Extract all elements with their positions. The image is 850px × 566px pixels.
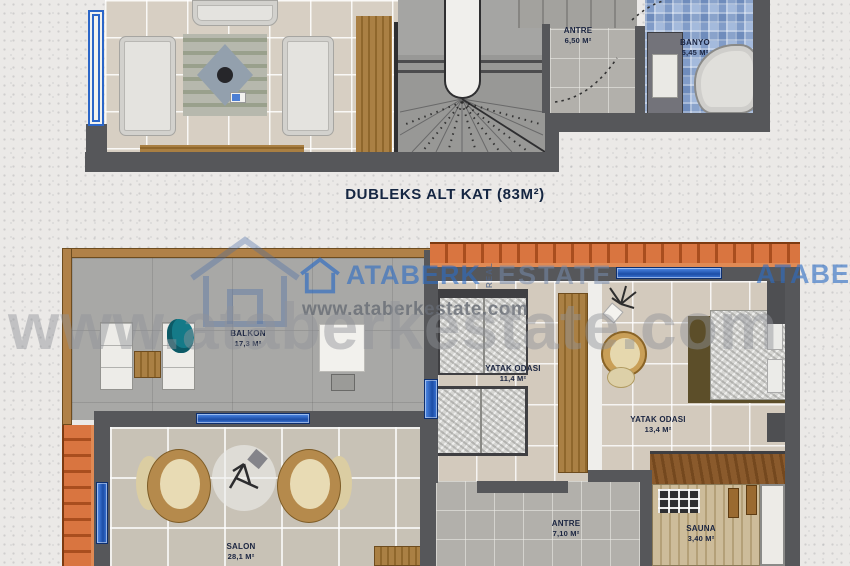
room-area: 6,50 M² xyxy=(540,36,616,46)
room-area: 5,45 M² xyxy=(655,48,735,58)
room-label-antre-upper: ANTRE 6,50 M² xyxy=(540,26,616,46)
hall-wardrobe xyxy=(650,451,785,484)
room-name: ANTRE xyxy=(540,26,616,36)
room-name: YATAK ODASI xyxy=(612,415,704,425)
balcony-plant xyxy=(167,319,194,353)
wall-bedroom1-bottom xyxy=(477,481,568,493)
armchair-2 xyxy=(277,449,341,523)
room-name: BALKON xyxy=(210,329,286,339)
room-name: BANYO xyxy=(655,38,735,48)
sauna-heater xyxy=(658,489,700,513)
room-label-salon: SALON 28,1 M² xyxy=(198,542,284,562)
wall-antre-banyo xyxy=(635,26,645,113)
room-name: ANTRE xyxy=(528,519,604,529)
room-label-yatak-odasi-1: YATAK ODASI 11,4 M² xyxy=(470,364,556,384)
armchair-1 xyxy=(147,449,211,523)
sauna-door-1 xyxy=(728,488,739,518)
room-name: YATAK ODASI xyxy=(470,364,556,374)
wall-right-outer xyxy=(785,265,800,566)
room-label-antre-lower: ANTRE 7,10 M² xyxy=(528,519,604,539)
balcony-table xyxy=(134,351,161,378)
salon-cabinet xyxy=(374,546,426,566)
room-label-banyo: BANYO 5,45 M² xyxy=(655,38,735,58)
room-name: SAUNA xyxy=(658,524,744,534)
floor-plan-image: ANTRE 6,50 M² BANYO 5,45 M² DUBLEKS ALT … xyxy=(0,0,850,566)
window-bedroom2-top xyxy=(616,267,722,279)
window-salon-left xyxy=(96,482,108,544)
wall-bottom-right xyxy=(545,113,770,132)
wardrobe-bottom-right xyxy=(767,413,786,442)
sun-lounger-1 xyxy=(100,322,133,390)
window-bedroom1-left xyxy=(424,379,438,419)
roof-tiles-left xyxy=(62,425,94,566)
window-salon-top xyxy=(196,413,310,424)
balcony-rail-top xyxy=(62,248,436,258)
balcony-gray-item xyxy=(331,374,355,391)
door-swing-arcs xyxy=(85,0,775,172)
room-area: 11,4 M² xyxy=(470,374,556,384)
wardrobe-top-right xyxy=(767,277,786,324)
balcony-rail-left xyxy=(62,248,72,425)
room-name: SALON xyxy=(198,542,284,552)
bed-single-1 xyxy=(438,289,528,375)
wall-banyo-right xyxy=(753,0,770,126)
ottoman xyxy=(607,367,635,388)
wall-connector xyxy=(545,113,559,172)
shower-area xyxy=(760,484,785,566)
wall-bottom-left xyxy=(85,152,555,172)
room-area: 3,40 M² xyxy=(658,534,744,544)
plant-icon xyxy=(600,282,642,328)
window-living-left xyxy=(88,10,104,126)
wall-bedrooms-top xyxy=(430,265,800,281)
sauna-door-2 xyxy=(746,485,757,515)
room-label-sauna: SAUNA 3,40 M² xyxy=(658,524,744,544)
balcony-white-table xyxy=(319,324,365,372)
room-area: 13,4 M² xyxy=(612,425,704,435)
room-label-balkon: BALKON 17,3 M² xyxy=(210,329,286,349)
wall-salon-right xyxy=(420,411,436,566)
room-label-yatak-odasi-2: YATAK ODASI 13,4 M² xyxy=(612,415,704,435)
wall-antre-sauna xyxy=(640,481,652,566)
room-area: 7,10 M² xyxy=(528,529,604,539)
room-area: 17,3 M² xyxy=(210,339,286,349)
plan-caption: DUBLEKS ALT KAT (83M²) xyxy=(280,186,610,203)
bed-single-2 xyxy=(432,386,528,456)
roof-tiles-top xyxy=(430,242,800,267)
room-area: 28,1 M² xyxy=(198,552,284,562)
wardrobe-divider xyxy=(558,293,588,473)
